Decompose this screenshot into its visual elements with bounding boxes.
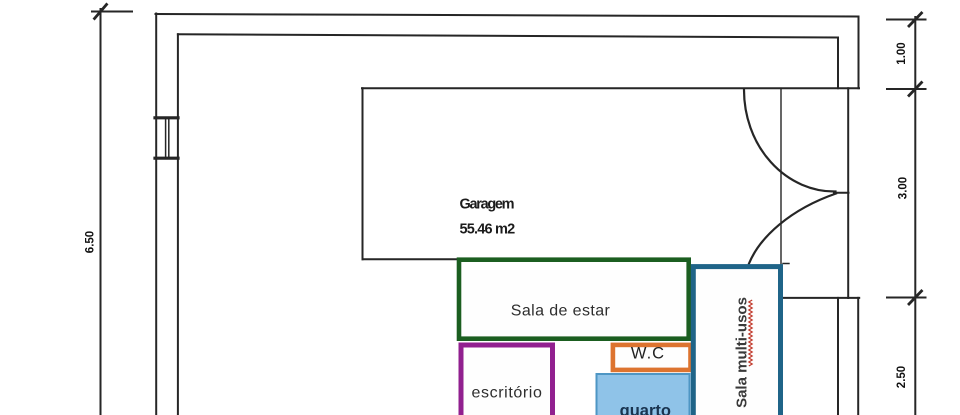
svg-text:Sala de estar: Sala de estar xyxy=(511,303,611,320)
svg-text:Garagem: Garagem xyxy=(460,197,514,213)
svg-text:55.46 m2: 55.46 m2 xyxy=(460,221,516,237)
svg-text:2.50: 2.50 xyxy=(896,366,908,388)
svg-text:1.00: 1.00 xyxy=(896,42,908,64)
svg-text:6.50: 6.50 xyxy=(85,231,97,253)
svg-text:3.00: 3.00 xyxy=(898,177,910,199)
svg-text:Sala multi-usos: Sala multi-usos xyxy=(734,297,751,408)
svg-text:escritório: escritório xyxy=(472,385,543,402)
svg-text:quarto: quarto xyxy=(620,402,671,415)
svg-text:W.C: W.C xyxy=(631,345,665,363)
